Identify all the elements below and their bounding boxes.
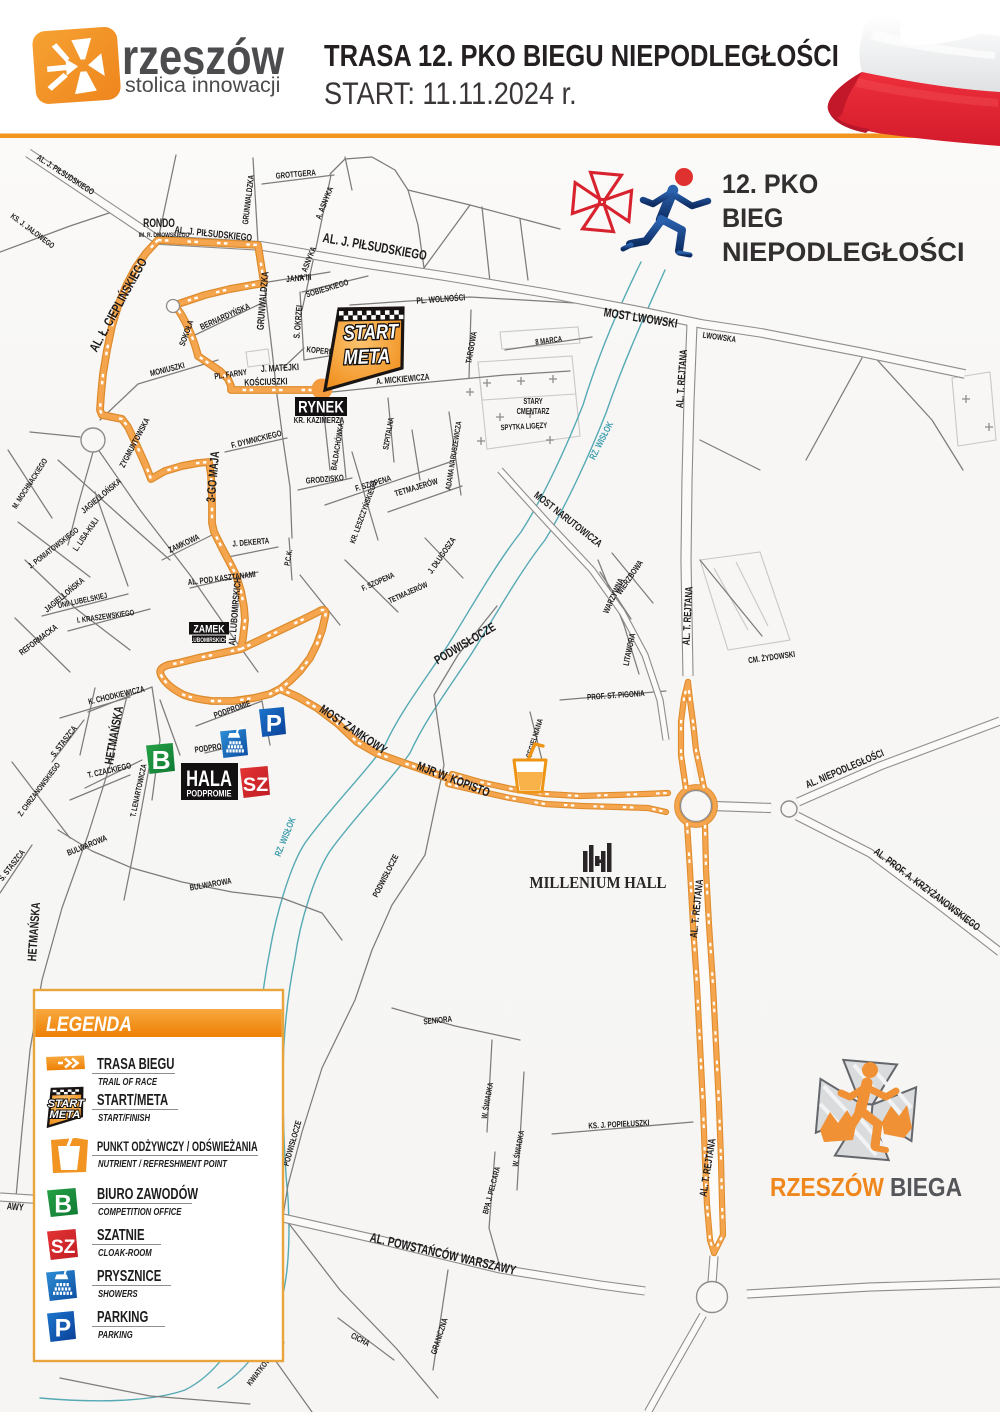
svg-text:RZESZÓW: RZESZÓW — [770, 1173, 885, 1203]
svg-text:B: B — [152, 745, 171, 775]
svg-text:SZATNIE: SZATNIE — [97, 1226, 144, 1243]
svg-text:META: META — [343, 344, 390, 369]
svg-text:AWY: AWY — [6, 1200, 24, 1213]
svg-text:NIEPODLEGŁOŚCI: NIEPODLEGŁOŚCI — [722, 236, 965, 267]
svg-text:TRASA BIEGU: TRASA BIEGU — [97, 1055, 174, 1072]
svg-text:SHOWERS: SHOWERS — [98, 1288, 138, 1299]
svg-text:LUBOMIRSKICH: LUBOMIRSKICH — [190, 637, 227, 644]
svg-text:START/META: START/META — [97, 1091, 168, 1108]
svg-text:PARKING: PARKING — [97, 1308, 148, 1325]
svg-text:BIEG: BIEG — [722, 202, 783, 233]
svg-text:P: P — [55, 1315, 72, 1342]
svg-text:JANA III: JANA III — [286, 272, 312, 284]
svg-text:KR. KAZIMERZA: KR. KAZIMERZA — [294, 415, 345, 425]
svg-text:START: 11.11.2024 r.: START: 11.11.2024 r. — [324, 76, 577, 111]
svg-text:BIURO ZAWODÓW: BIURO ZAWODÓW — [97, 1185, 198, 1202]
svg-text:TRASA 12. PKO BIEGU NIEPODLEGŁ: TRASA 12. PKO BIEGU NIEPODLEGŁOŚCI — [324, 39, 839, 74]
svg-text:TRAIL OF RACE: TRAIL OF RACE — [98, 1076, 158, 1087]
svg-text:KOŚCIUSZKI: KOŚCIUSZKI — [244, 374, 288, 388]
svg-text:CLOAK-ROOM: CLOAK-ROOM — [98, 1247, 152, 1258]
svg-text:SZ: SZ — [243, 774, 268, 796]
svg-text:STARY: STARY — [523, 398, 543, 406]
svg-text:B: B — [54, 1191, 72, 1218]
svg-text:START: START — [48, 1098, 86, 1110]
svg-text:PARKING: PARKING — [98, 1329, 133, 1340]
svg-text:PRYSZNICE: PRYSZNICE — [97, 1267, 161, 1284]
svg-text:COMPETITION OFFICE: COMPETITION OFFICE — [98, 1206, 182, 1217]
svg-text:BIEGA: BIEGA — [890, 1174, 962, 1203]
svg-text:PODPROMIE: PODPROMIE — [186, 789, 232, 799]
svg-text:CMENTARZ: CMENTARZ — [517, 408, 550, 416]
svg-text:NUTRIENT / REFRESHMENT POINT: NUTRIENT / REFRESHMENT POINT — [98, 1158, 228, 1169]
svg-text:stolica innowacji: stolica innowacji — [125, 73, 280, 97]
svg-text:MILLENIUM HALL: MILLENIUM HALL — [530, 874, 667, 892]
svg-text:START: START — [343, 319, 400, 344]
svg-text:RYNEK: RYNEK — [298, 398, 344, 417]
svg-text:SZ: SZ — [51, 1237, 76, 1258]
svg-text:12. PKO: 12. PKO — [722, 168, 818, 199]
svg-text:P: P — [266, 711, 282, 738]
svg-text:START/FINISH: START/FINISH — [98, 1112, 150, 1123]
svg-text:RONDO: RONDO — [143, 218, 175, 231]
svg-text:PUNKT ODŻYWCZY / ODŚWIEŻANIA: PUNKT ODŻYWCZY / ODŚWIEŻANIA — [97, 1139, 258, 1154]
svg-text:J. MATEJKI: J. MATEJKI — [261, 361, 300, 374]
svg-text:META: META — [49, 1109, 80, 1121]
svg-text:LEGENDA: LEGENDA — [46, 1013, 132, 1037]
svg-text:ZAMEK: ZAMEK — [193, 624, 225, 636]
